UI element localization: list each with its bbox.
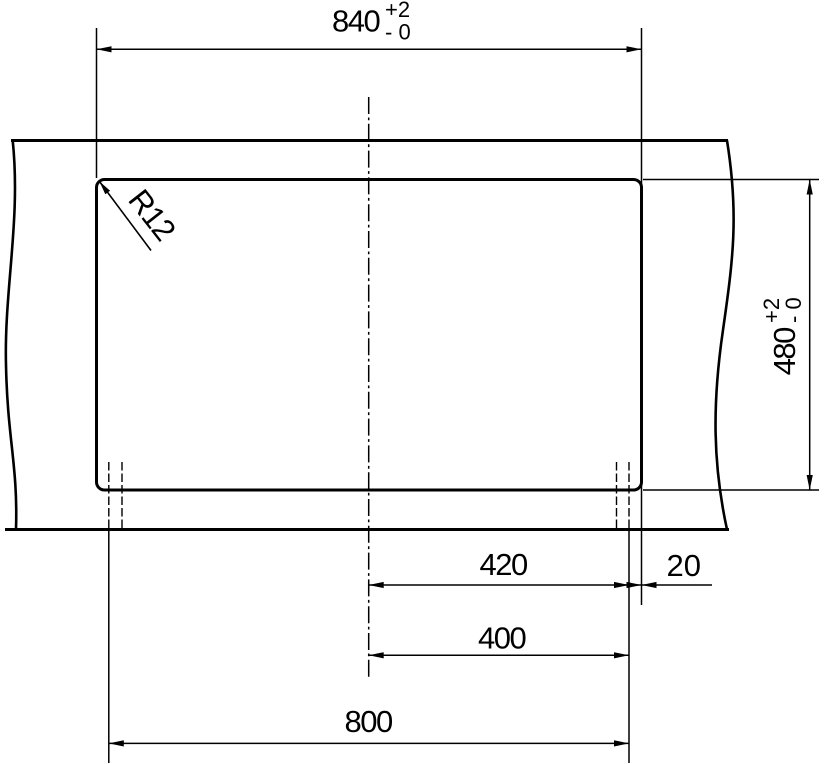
- svg-text:20: 20: [667, 548, 701, 583]
- svg-text:800: 800: [345, 704, 393, 739]
- svg-text:420: 420: [480, 547, 528, 582]
- svg-text:- 0: - 0: [385, 20, 411, 45]
- svg-text:480: 480: [767, 327, 802, 375]
- svg-text:R12: R12: [121, 183, 182, 247]
- svg-text:- 0: - 0: [781, 297, 806, 323]
- svg-text:400: 400: [478, 621, 526, 656]
- svg-text:840: 840: [332, 3, 380, 38]
